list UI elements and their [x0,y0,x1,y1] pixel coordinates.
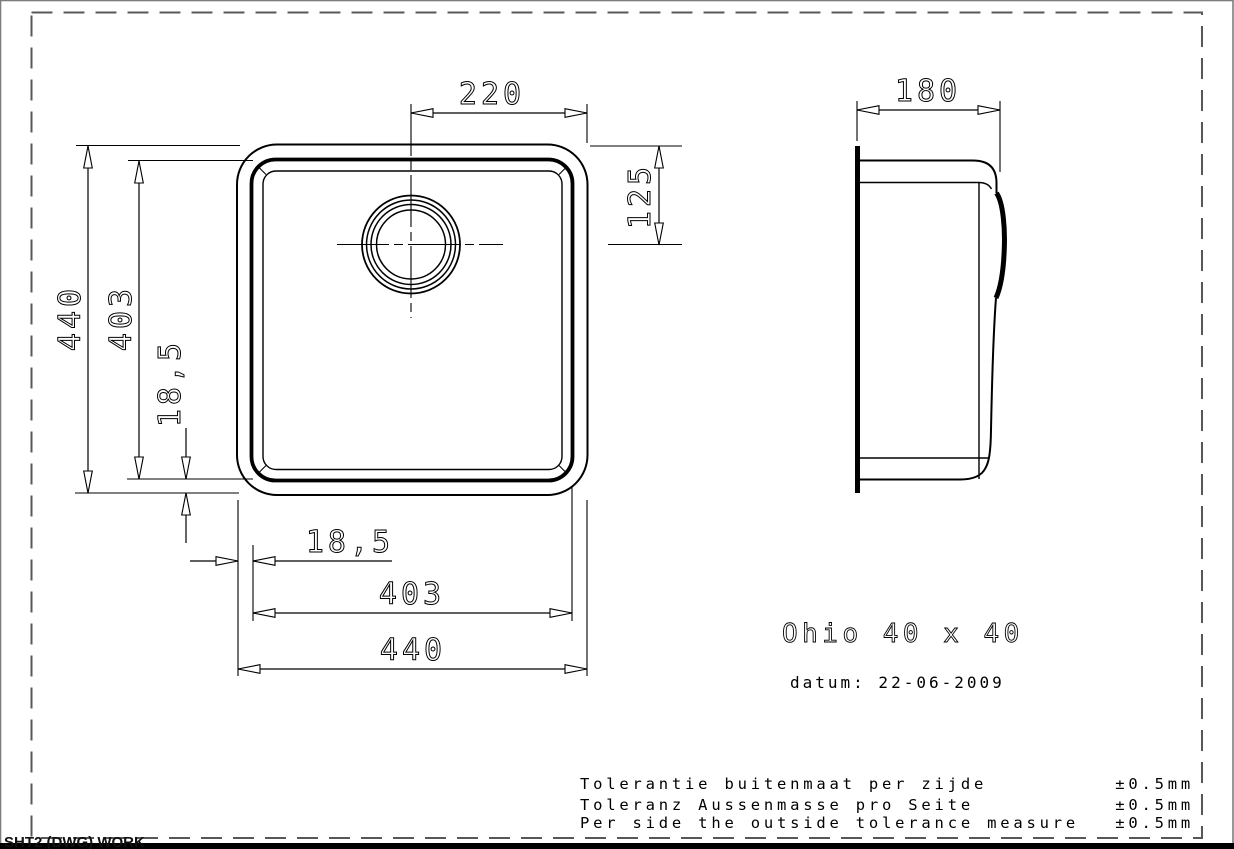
tolerance-value-nl: ±0.5mm [1115,775,1194,793]
dim-text-125: 125 [623,163,658,229]
tolerance-value-de: ±0.5mm [1115,796,1194,814]
bottom-edge-bar [0,843,1234,849]
dim-text-440-left: 440 [53,285,88,351]
dim-text-18-5-bottom: 18,5 [306,525,394,560]
tolerance-value-en: ±0.5mm [1115,814,1194,832]
sheet-tab[interactable]: SHT2 (DWG) WORK [4,834,145,849]
tolerance-label-de: Toleranz Aussenmasse pro Seite [580,796,974,814]
dim-text-180: 180 [895,74,961,109]
dim-text-440-bottom: 440 [380,633,446,668]
cad-drawing-canvas: 220 125 180 440 403 [0,0,1234,849]
tolerance-label-en: Per side the outside tolerance measure [580,814,1079,832]
drawing-sheet: 220 125 180 440 403 [0,0,1234,849]
drawing-title: Ohio 40 x 40 [782,619,1024,649]
dim-text-18-5-left: 18,5 [153,339,188,427]
dim-text-403-left: 403 [104,285,139,351]
dim-text-220: 220 [459,77,525,112]
dim-text-403-bottom: 403 [379,577,445,612]
tolerance-label-nl: Tolerantie buitenmaat per zijde [580,775,987,793]
drawing-date: datum: 22-06-2009 [790,673,1005,692]
